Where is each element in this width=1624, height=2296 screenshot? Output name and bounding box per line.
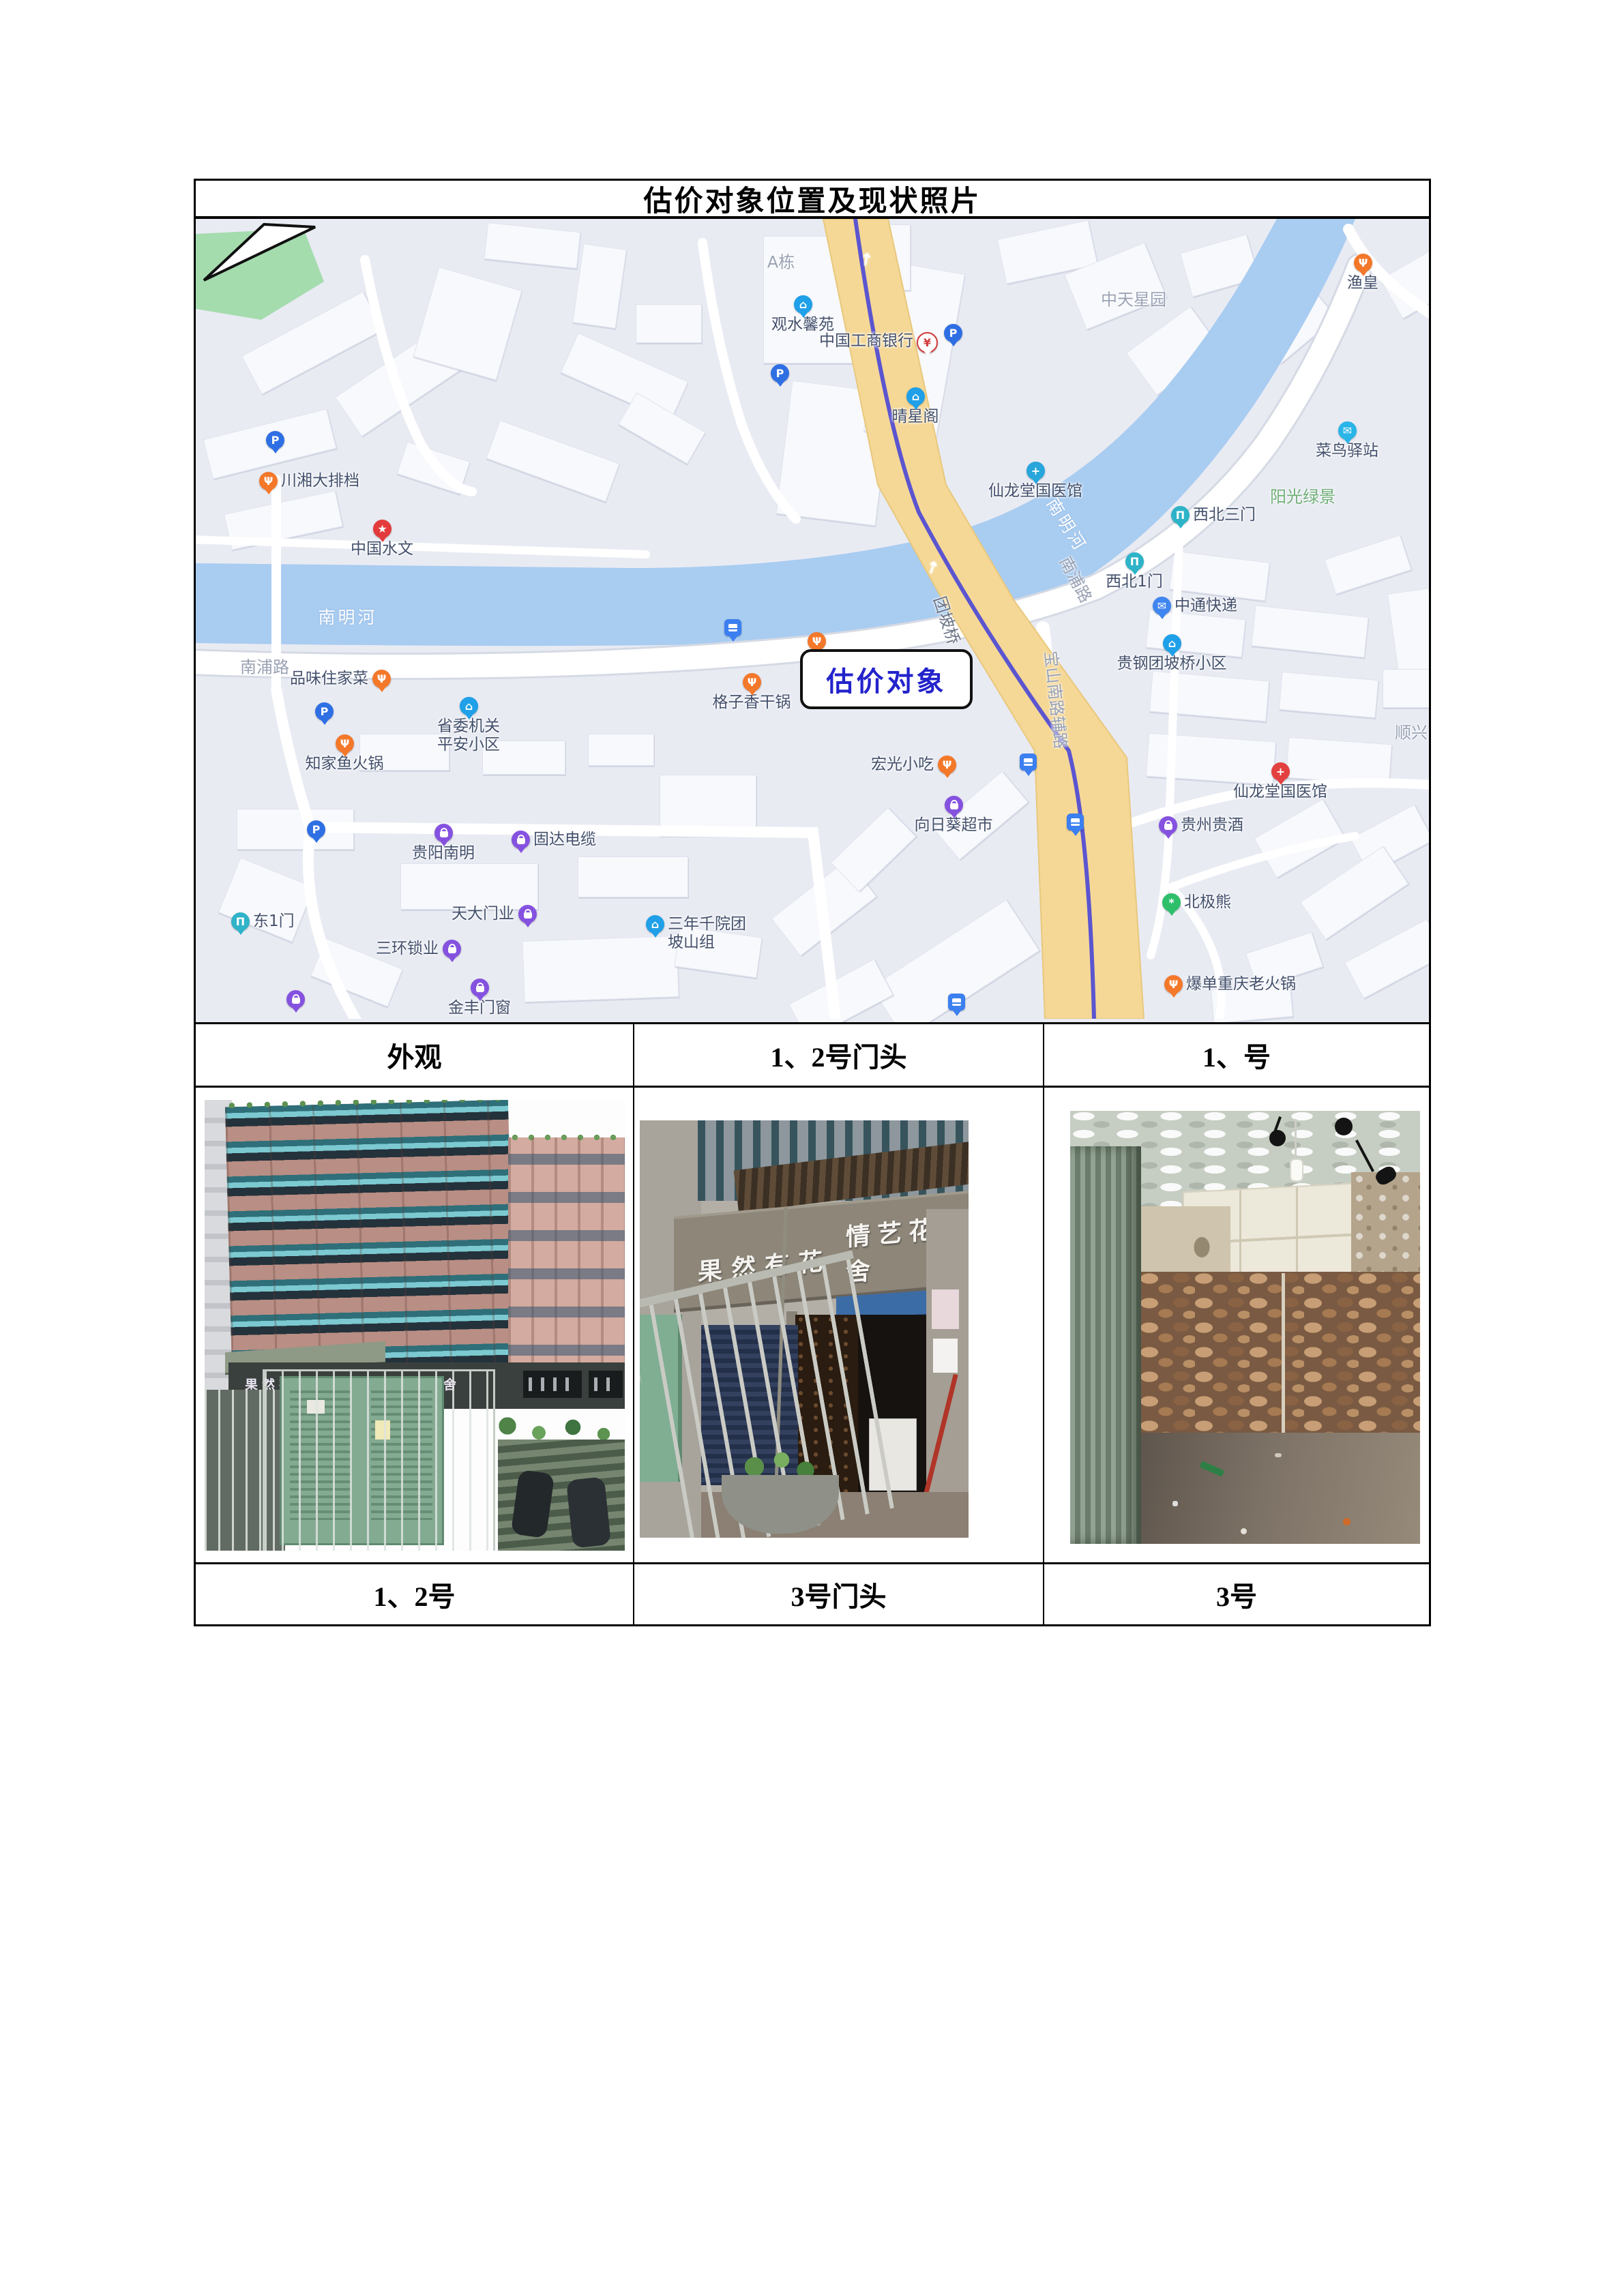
poi-label: 贵州贵酒 — [1181, 816, 1243, 835]
report-page: 估价对象位置及现状照片 — [0, 0, 1624, 2296]
river-label: 南明河 — [1042, 493, 1094, 556]
parking-icon: P — [315, 702, 334, 721]
road-label: 南浦路 — [240, 654, 289, 678]
food-icon: Ψ — [372, 670, 391, 688]
parking-icon: P — [771, 364, 789, 383]
post-icon: ✉ — [1338, 421, 1357, 440]
photo-interior — [1070, 1111, 1420, 1544]
road-label: 南浦路 — [1055, 552, 1099, 606]
home-icon: ⌂ — [460, 697, 478, 715]
shop-sign-board — [523, 1371, 582, 1398]
poster — [933, 1339, 958, 1373]
track-light — [1269, 1130, 1286, 1146]
gate-icon: Π — [1125, 552, 1144, 571]
poi-label: 三年千院团 坡山组 — [668, 915, 746, 952]
debris — [1343, 1518, 1350, 1525]
bag-icon — [471, 979, 489, 997]
header-no-1: 1、号 — [1043, 1024, 1429, 1086]
map-poi-layer: Ψ川湘大排档P★中国水文Ψ品味住家菜PPΨ知家鱼火锅⌂省委机关 平安小区⌂观水馨… — [196, 219, 1429, 1019]
food-icon: Ψ — [938, 756, 956, 774]
parking-icon: P — [307, 820, 325, 839]
poster — [932, 1289, 959, 1329]
bank-icon: ¥ — [917, 332, 938, 353]
bag-icon — [1159, 816, 1177, 835]
home-icon: ⌂ — [794, 295, 812, 314]
debris — [1241, 1528, 1247, 1534]
parking-icon: P — [266, 431, 284, 449]
gate-icon: Π — [231, 912, 250, 931]
home-icon: ⌂ — [906, 387, 925, 406]
poi-label: 北极熊 — [1184, 893, 1231, 912]
map-canvas: Ψ川湘大排档P★中国水文Ψ品味住家菜PPΨ知家鱼火锅⌂省委机关 平安小区⌂观水馨… — [196, 219, 1429, 1019]
red-broom — [924, 1374, 958, 1494]
road-label: 团坡桥 — [929, 593, 967, 646]
poi-label: 爆单重庆老火锅 — [1186, 975, 1296, 994]
bag-icon — [512, 831, 530, 849]
right-pillar — [926, 1209, 969, 1538]
photo-cell-shopfront: 果然有花 情艺花舍 — [633, 1088, 1043, 1562]
caption-no-3-shopfront: 3号门头 — [633, 1564, 1043, 1624]
food-icon: Ψ — [808, 632, 826, 651]
callout-tail — [196, 219, 325, 287]
area-label: A栋 — [767, 249, 795, 273]
wall-pipe — [1282, 1273, 1285, 1435]
food-icon: Ψ — [1354, 254, 1372, 272]
area-label: 顺兴 — [1395, 719, 1428, 743]
page-title: 估价对象位置及现状照片 — [196, 181, 1429, 219]
poi-label: 三环锁业 — [376, 940, 439, 958]
food-icon: Ψ — [336, 734, 354, 753]
courier-icon: ✉ — [1153, 597, 1171, 615]
photo-cell-interior — [1043, 1088, 1429, 1562]
subject-callout: 估价对象 — [800, 649, 973, 709]
pill-icon: + — [1027, 462, 1045, 480]
debris — [1275, 1453, 1282, 1457]
caption-no-3: 3号 — [1043, 1564, 1429, 1624]
stone-wall — [1140, 1272, 1420, 1435]
debris — [1172, 1501, 1178, 1506]
photo-exterior: 果然有花 情艺花舍 — [205, 1100, 625, 1551]
poi-label: 川湘大排档 — [281, 472, 359, 490]
appraisal-photo-table: 估价对象位置及现状照片 — [194, 179, 1431, 1626]
location-map: Ψ川湘大排档P★中国水文Ψ品味住家菜PPΨ知家鱼火锅⌂省委机关 平安小区⌂观水馨… — [196, 219, 1429, 1024]
bag-icon — [945, 796, 963, 814]
track-light — [1335, 1118, 1353, 1135]
moped — [566, 1476, 611, 1548]
river-label: 南明河 — [318, 604, 377, 629]
kiosk-cage — [263, 1369, 495, 1551]
bear-icon: * — [1162, 893, 1181, 912]
residential-facade — [225, 1100, 515, 1374]
photo-cell-exterior: 果然有花 情艺花舍 — [196, 1088, 633, 1562]
home-icon: ⌂ — [646, 915, 664, 934]
parking-icon: P — [944, 324, 962, 342]
poi-label: 西北三门 — [1193, 506, 1256, 524]
food-icon: Ψ — [259, 472, 278, 490]
poi-label: 中国工商银行 — [819, 332, 913, 351]
caption-no-1-2: 1、2号 — [196, 1564, 633, 1624]
gate-icon: Π — [1171, 506, 1190, 524]
road-label: 宝山南路辅路 — [1040, 650, 1074, 750]
building-wing — [508, 1137, 625, 1375]
bulb-cord — [1295, 1119, 1297, 1160]
bag-icon — [286, 990, 305, 1009]
food-icon: Ψ — [743, 673, 761, 691]
hanging-bulb — [1290, 1159, 1303, 1182]
bag-icon — [434, 824, 453, 842]
poi-label: 宏光小吃 — [871, 756, 934, 774]
photo-storefront: 果然有花 情艺花舍 — [640, 1120, 969, 1538]
hospital-icon: + — [1271, 762, 1290, 781]
bus-icon — [1020, 754, 1037, 771]
poi-label: 中通快递 — [1175, 597, 1237, 615]
area-label: 中天星园 — [1101, 286, 1166, 310]
bag-icon — [518, 905, 537, 923]
photo-header-row: 外观 1、2号门头 1、号 — [196, 1024, 1429, 1088]
debris — [1200, 1461, 1225, 1477]
home-icon: ⌂ — [1163, 634, 1181, 653]
bus-icon — [724, 619, 741, 636]
poi-label: 东1门 — [253, 912, 295, 931]
star-icon: ★ — [373, 520, 392, 538]
photo-caption-row: 1、2号 3号门头 3号 — [196, 1564, 1429, 1624]
roller-shutter — [1070, 1146, 1141, 1544]
poi-label: 品味住家菜 — [290, 670, 368, 688]
road-label: ↑ — [923, 557, 942, 580]
area-label: 阳光绿景 — [1270, 483, 1335, 507]
road-label: ↑ — [858, 249, 875, 270]
bus-icon — [1067, 814, 1084, 831]
poi-label: 固达电缆 — [533, 831, 596, 849]
bus-icon — [948, 994, 965, 1011]
poi-label: 天大门业 — [452, 905, 514, 923]
photo-row: 果然有花 情艺花舍 — [196, 1088, 1429, 1564]
header-exterior: 外观 — [196, 1024, 633, 1086]
food-icon: Ψ — [1164, 975, 1183, 994]
shop-sign-board — [589, 1371, 623, 1398]
bag-icon — [443, 940, 461, 958]
header-shopfront-1-2: 1、2号门头 — [633, 1024, 1043, 1086]
